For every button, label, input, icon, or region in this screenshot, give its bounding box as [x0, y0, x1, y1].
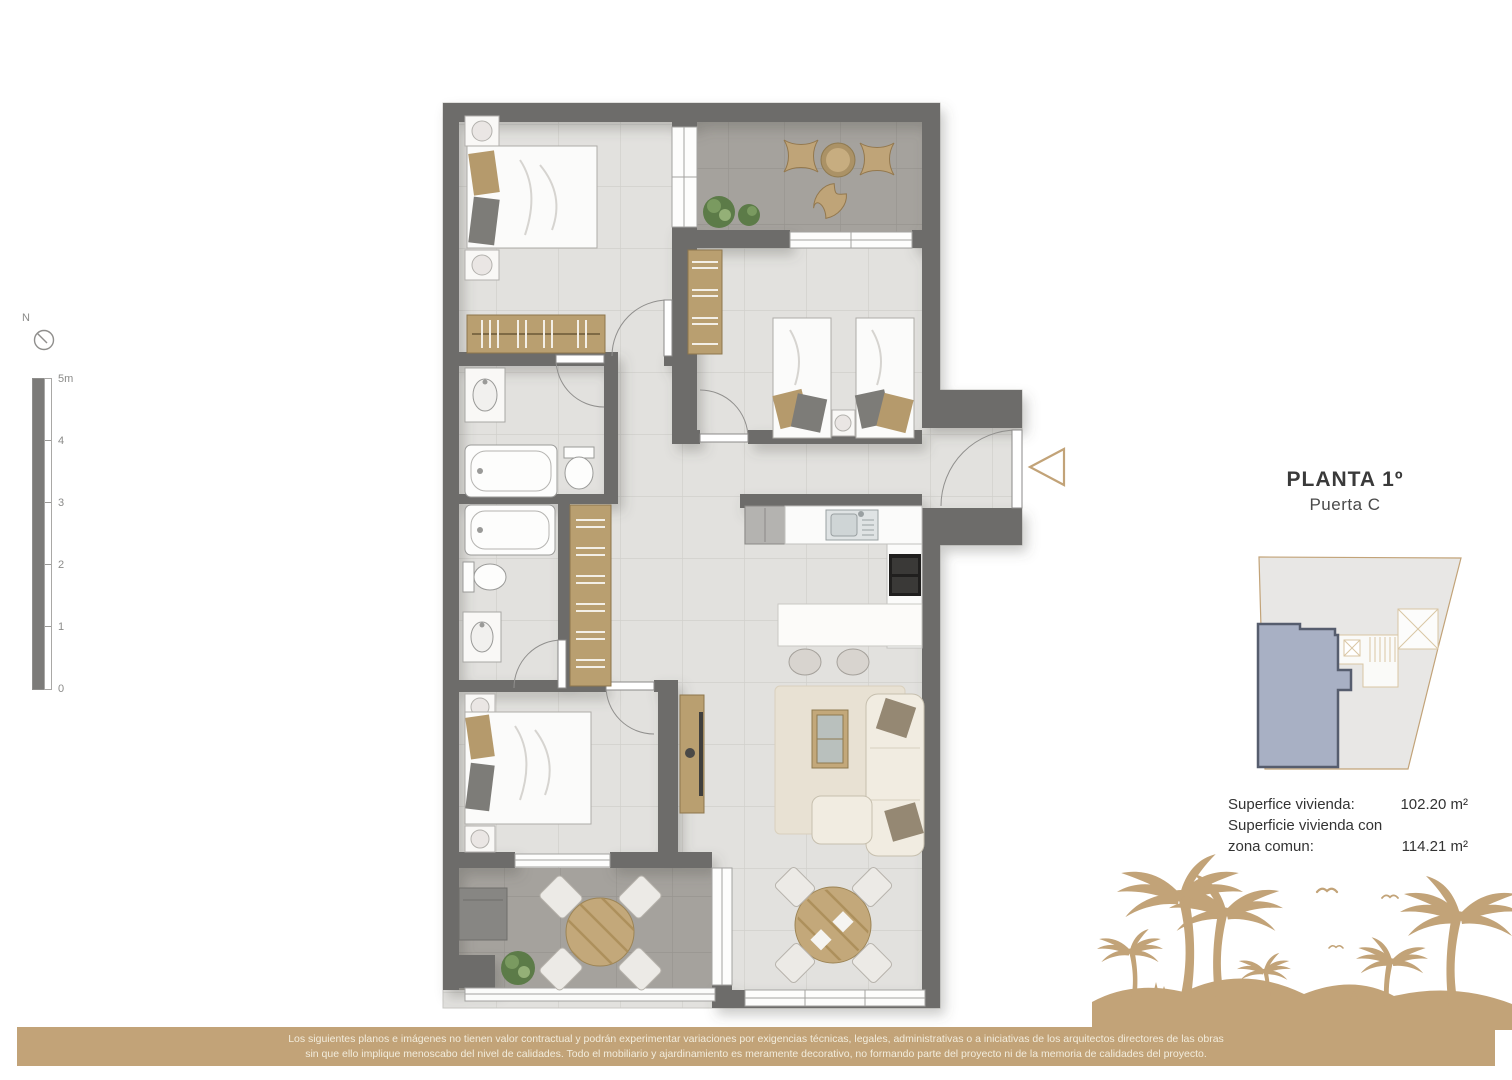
- area-row: Superficie vivienda con: [1228, 815, 1468, 836]
- terrace-railing: [465, 988, 715, 1001]
- area-label: Superficie vivienda con: [1228, 815, 1382, 836]
- wardrobe-corridor: [570, 505, 611, 686]
- cooktop: [889, 554, 921, 596]
- kitchen-sink: [826, 510, 878, 540]
- butterfly-chair: [860, 143, 894, 175]
- floorplan-page: N 5m 4 3 2 1 0: [0, 0, 1512, 1080]
- page-title: PLANTA 1º: [1232, 468, 1458, 492]
- surface-areas: Superfice vivienda: 102.20 m² Superficie…: [1228, 794, 1468, 857]
- coffee-table: [812, 710, 848, 768]
- wardrobe-bedroom1: [467, 315, 605, 353]
- building-key-plan: [1248, 552, 1464, 776]
- footer-disclaimer: Los siguientes planos e imágenes no tien…: [17, 1027, 1495, 1066]
- grill-cabinet: [459, 888, 507, 940]
- disclaimer-line1: Los siguientes planos e imágenes no tien…: [17, 1032, 1495, 1047]
- plan-title-block: PLANTA 1º Puerta C: [1232, 468, 1458, 515]
- page-subtitle: Puerta C: [1232, 495, 1458, 515]
- area-row: Superfice vivienda: 102.20 m²: [1228, 794, 1468, 815]
- entrance-arrow-icon: [1030, 449, 1064, 485]
- window-bedroom2-terrace: [515, 854, 610, 867]
- bar-stool: [789, 649, 821, 675]
- window-living-terrace: [712, 868, 732, 985]
- bar-stool: [837, 649, 869, 675]
- window-twin-bedroom: [790, 232, 912, 248]
- plant: [501, 951, 535, 985]
- tv-console: [680, 695, 704, 813]
- window-living-bottom: [745, 990, 925, 1006]
- palm-decoration: [1092, 852, 1512, 1030]
- unit-highlight: [1258, 624, 1351, 767]
- elevator-shaft: [1398, 609, 1438, 649]
- kitchen-island: [778, 604, 922, 646]
- disclaimer-line2: sin que ello implique menoscabo del nive…: [17, 1047, 1495, 1062]
- window-bedroom1-terrace: [672, 127, 697, 227]
- area-label: Superfice vivienda:: [1228, 794, 1355, 815]
- wardrobe-twin: [688, 250, 722, 354]
- butterfly-chair: [784, 140, 818, 172]
- area-value: 102.20 m²: [1400, 794, 1468, 815]
